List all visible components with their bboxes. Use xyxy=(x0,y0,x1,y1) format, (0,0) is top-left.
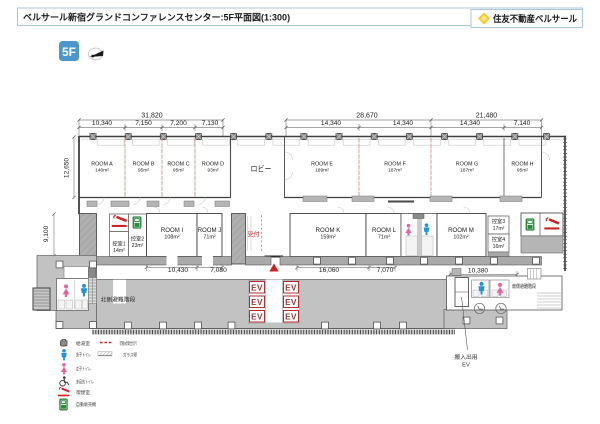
svg-text:159m²: 159m² xyxy=(320,235,335,241)
svg-text:14m²: 14m² xyxy=(113,248,125,254)
svg-text:93m²: 93m² xyxy=(207,168,219,174)
svg-text:控室3: 控室3 xyxy=(492,217,505,225)
svg-text:可動式間仕切り: 可動式間仕切り xyxy=(120,340,138,347)
svg-text:95m²: 95m² xyxy=(517,168,529,174)
svg-text:17m²: 17m² xyxy=(493,226,505,232)
svg-text:71m²: 71m² xyxy=(203,235,215,241)
svg-text:7,070: 7,070 xyxy=(377,267,394,274)
svg-text:EV: EV xyxy=(285,298,297,307)
svg-text:23m²: 23m² xyxy=(132,243,144,249)
svg-text:28,670: 28,670 xyxy=(356,113,378,120)
svg-text:女子トイレ: 女子トイレ xyxy=(76,366,91,373)
svg-text:ROOM L: ROOM L xyxy=(372,227,397,234)
svg-text:住友不動産ベルサール: 住友不動産ベルサール xyxy=(493,13,577,24)
svg-text:控室2: 控室2 xyxy=(131,235,144,243)
svg-text:187m²: 187m² xyxy=(388,168,402,174)
svg-text:187m²: 187m² xyxy=(460,168,474,174)
svg-text:5F: 5F xyxy=(62,45,76,59)
svg-text:14,340: 14,340 xyxy=(321,120,342,127)
svg-text:7,140: 7,140 xyxy=(514,120,531,127)
svg-text:7,200: 7,200 xyxy=(170,120,187,127)
svg-text:14,340: 14,340 xyxy=(460,120,481,127)
svg-text:140m²: 140m² xyxy=(95,168,109,174)
svg-text:EV: EV xyxy=(251,313,263,322)
svg-text:12,650: 12,650 xyxy=(64,158,71,179)
svg-text:北側避難階段: 北側避難階段 xyxy=(101,296,136,304)
svg-text:95m²: 95m² xyxy=(138,168,150,174)
svg-text:7,150: 7,150 xyxy=(135,120,152,127)
svg-text:控室4: 控室4 xyxy=(492,235,505,243)
svg-text:ROOM K: ROOM K xyxy=(316,227,341,234)
svg-text:男子トイレ: 男子トイレ xyxy=(76,352,91,359)
svg-text:多目的トイレ: 多目的トイレ xyxy=(76,378,94,385)
svg-text:ガラス壁: ガラス壁 xyxy=(123,351,137,358)
svg-text:ロビー: ロビー xyxy=(251,165,272,174)
svg-text:9,100: 9,100 xyxy=(43,225,50,242)
svg-text:EV: EV xyxy=(251,284,263,293)
svg-text:ROOM H: ROOM H xyxy=(511,162,533,168)
svg-text:14,340: 14,340 xyxy=(393,120,414,127)
svg-text:喫煙室: 喫煙室 xyxy=(76,389,91,396)
svg-text:ROOM C: ROOM C xyxy=(167,162,189,168)
svg-text:21,480: 21,480 xyxy=(476,113,498,120)
svg-text:ベルサール新宿グランドコンファレンスセンター:5F平面図(1: ベルサール新宿グランドコンファレンスセンター:5F平面図(1:300) xyxy=(23,12,290,23)
svg-text:ROOM I: ROOM I xyxy=(161,227,184,234)
svg-text:EV: EV xyxy=(285,313,297,322)
svg-text:10,430: 10,430 xyxy=(168,267,189,274)
svg-text:189m²: 189m² xyxy=(315,168,329,174)
svg-text:ROOM B: ROOM B xyxy=(133,162,155,168)
svg-text:給湯室: 給湯室 xyxy=(76,340,91,347)
svg-text:31,820: 31,820 xyxy=(141,113,163,120)
svg-text:EV: EV xyxy=(251,298,263,307)
svg-text:ROOM D: ROOM D xyxy=(202,162,224,168)
svg-text:搬入出用: 搬入出用 xyxy=(454,353,477,361)
svg-text:16,060: 16,060 xyxy=(319,267,340,274)
svg-text:108m²: 108m² xyxy=(164,235,179,241)
svg-text:ROOM M: ROOM M xyxy=(448,227,474,234)
svg-text:控室1: 控室1 xyxy=(112,240,125,248)
svg-text:南側避難階段: 南側避難階段 xyxy=(512,282,536,290)
svg-text:自動販売機: 自動販売機 xyxy=(76,401,96,408)
svg-text:EV: EV xyxy=(462,363,470,369)
svg-text:7,130: 7,130 xyxy=(202,120,219,127)
svg-text:ROOM A: ROOM A xyxy=(91,162,113,168)
svg-text:ROOM J: ROOM J xyxy=(198,227,222,234)
svg-text:ROOM F: ROOM F xyxy=(384,162,406,168)
svg-text:ROOM G: ROOM G xyxy=(456,162,478,168)
svg-text:7,080: 7,080 xyxy=(210,267,227,274)
svg-text:10,340: 10,340 xyxy=(92,120,113,127)
svg-text:10,380: 10,380 xyxy=(468,268,489,275)
svg-text:EV: EV xyxy=(285,284,297,293)
svg-text:16m²: 16m² xyxy=(493,244,505,250)
svg-text:95m²: 95m² xyxy=(173,168,185,174)
svg-text:受付: 受付 xyxy=(247,231,259,239)
svg-text:102m²: 102m² xyxy=(453,235,468,241)
svg-text:71m²: 71m² xyxy=(378,235,390,241)
svg-text:ROOM E: ROOM E xyxy=(311,162,333,168)
